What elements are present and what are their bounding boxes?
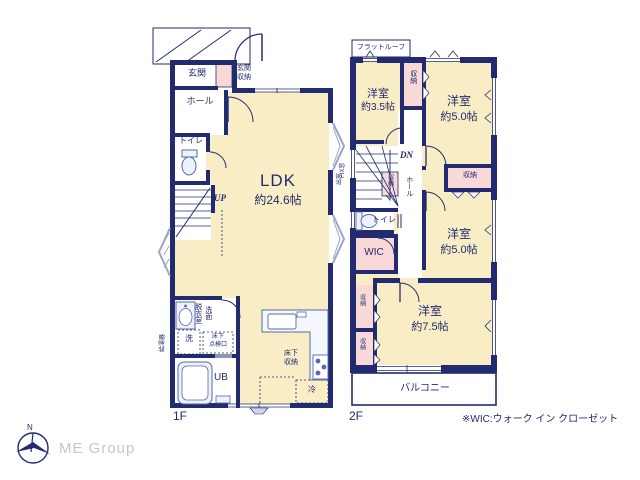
room-label-hall-1f: ホール bbox=[178, 97, 222, 107]
room-label-genkan: 玄関 bbox=[178, 69, 216, 79]
label-flat-roof: フラットルーフ bbox=[353, 44, 409, 52]
closet-label-e: 収納 bbox=[456, 172, 484, 180]
compass-icon bbox=[16, 433, 50, 463]
label-fridge: 冷 bbox=[300, 386, 324, 395]
floor1-label: 1F bbox=[173, 410, 187, 423]
annotation-1f-left: 給湯器 bbox=[160, 334, 167, 352]
room-size-nw: 約3.5帖 bbox=[352, 102, 404, 113]
stove-fixture bbox=[313, 355, 328, 379]
room-label-ne: 洋室 bbox=[434, 95, 484, 108]
label-washer: 洗 bbox=[180, 335, 198, 344]
room-label-wic: WIC bbox=[356, 247, 392, 258]
room-label-toilet-1f: トイレ bbox=[176, 137, 206, 146]
floor2-label: 2F bbox=[349, 410, 363, 423]
closet-label-top: 収納 bbox=[409, 70, 417, 100]
floorplan-page: 玄関 玄関 収納 ホール トイレ UP LDK 約24.6帖 脱衣室 洗面 洗 … bbox=[0, 0, 640, 480]
stairs-dn-label: DN bbox=[400, 151, 413, 161]
room-label-e: 洋室 bbox=[434, 228, 484, 241]
room-label-nw: 洋室 bbox=[356, 88, 400, 100]
label-underfloor-hatch-l2: 点検口 bbox=[204, 342, 232, 349]
room-label-toilet-2f: トイレ bbox=[372, 216, 396, 225]
wic-footnote: ※WIC:ウォーク イン クローゼット bbox=[462, 414, 618, 425]
room-label-hall-2f: ホール bbox=[405, 176, 413, 206]
label-balcony: バルコニー bbox=[390, 383, 460, 394]
compass-north-label: N bbox=[27, 424, 33, 433]
room-label-ldk: LDK bbox=[243, 172, 313, 191]
toilet-fixture bbox=[182, 150, 197, 175]
room-label-dressing: 脱衣室 bbox=[194, 303, 202, 339]
room-label-washstand: 洗面 bbox=[204, 306, 212, 332]
logo-text: ME Group bbox=[59, 441, 135, 458]
closet-label-s2: 収納 bbox=[358, 338, 365, 362]
annotation-2f-left: FIX窓 bbox=[340, 163, 347, 178]
stairs-up-label: UP bbox=[214, 194, 226, 204]
room-size-ldk: 約24.6帖 bbox=[240, 194, 316, 207]
floor1-plan bbox=[153, 28, 344, 414]
room-label-s: 洋室 bbox=[405, 305, 455, 318]
label-underfloor-hatch-l1: 床下 bbox=[204, 334, 232, 341]
room-label-ub: UB bbox=[214, 372, 228, 383]
label-genkan-storage-l2: 収納 bbox=[237, 74, 251, 82]
floorplan-drawing bbox=[0, 0, 640, 480]
closet-label-s1: 収納 bbox=[358, 294, 365, 318]
label-underfloor-storage-l1: 床下 bbox=[278, 350, 304, 358]
washstand-fixture bbox=[176, 302, 195, 329]
label-underfloor-storage-l2: 収納 bbox=[278, 359, 304, 367]
room-size-ne: 約5.0帖 bbox=[430, 111, 488, 123]
entry-step bbox=[250, 408, 268, 414]
room-size-e: 約5.0帖 bbox=[430, 244, 488, 256]
room-size-s: 約7.5帖 bbox=[401, 321, 459, 333]
label-genkan-storage-l1: 玄関 bbox=[237, 65, 251, 73]
closet-label-stair: 収納 bbox=[386, 174, 393, 194]
